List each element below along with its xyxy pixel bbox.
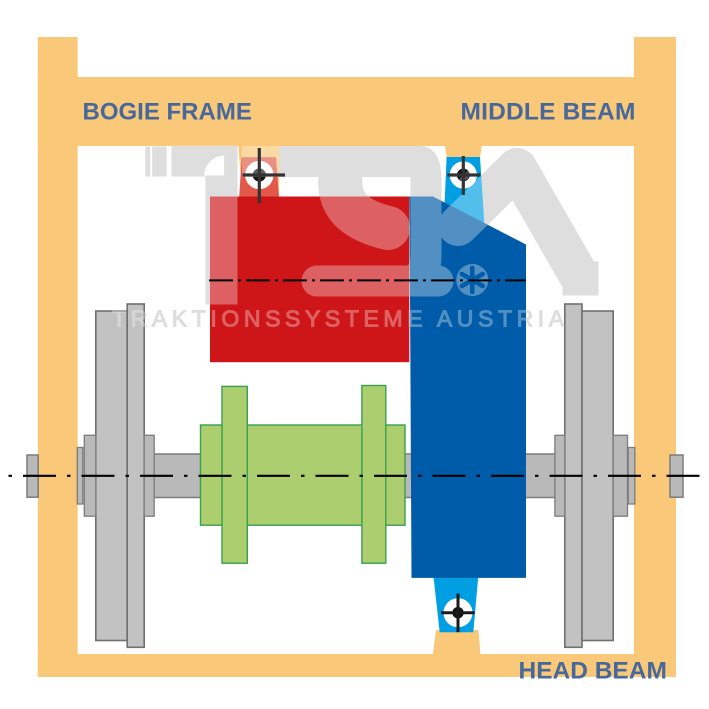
svg-text:MIDDLE BEAM: MIDDLE BEAM — [461, 99, 636, 126]
svg-text:BOGIE FRAME: BOGIE FRAME — [83, 99, 252, 126]
svg-text:HEAD BEAM: HEAD BEAM — [519, 658, 667, 685]
